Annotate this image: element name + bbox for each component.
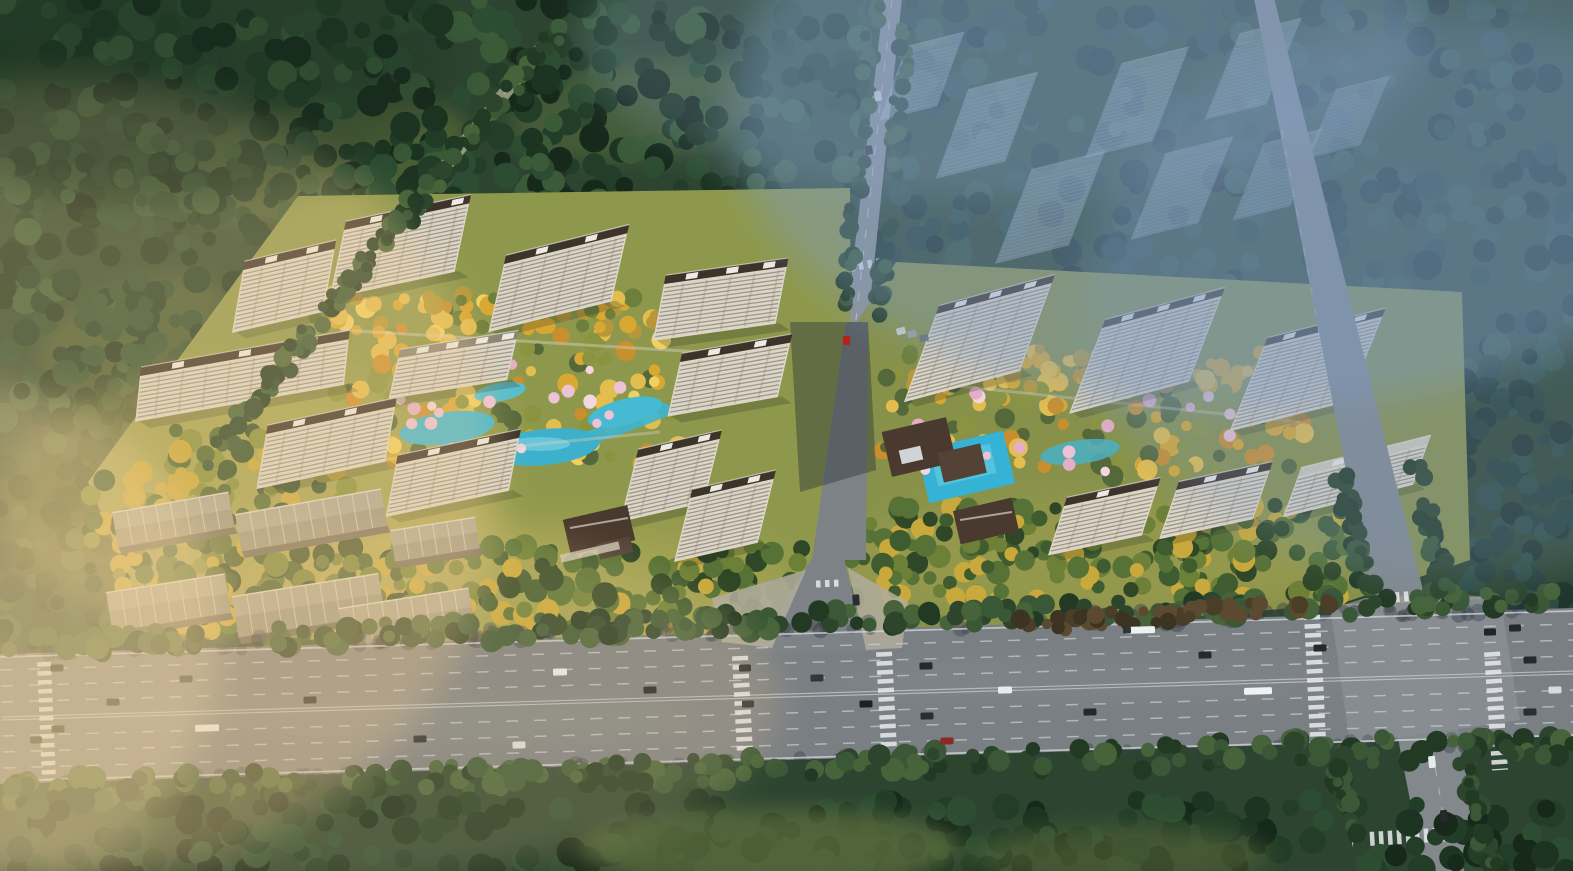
aerial-rendering	[0, 0, 1573, 871]
aerial-render-viewport	[0, 0, 1573, 871]
